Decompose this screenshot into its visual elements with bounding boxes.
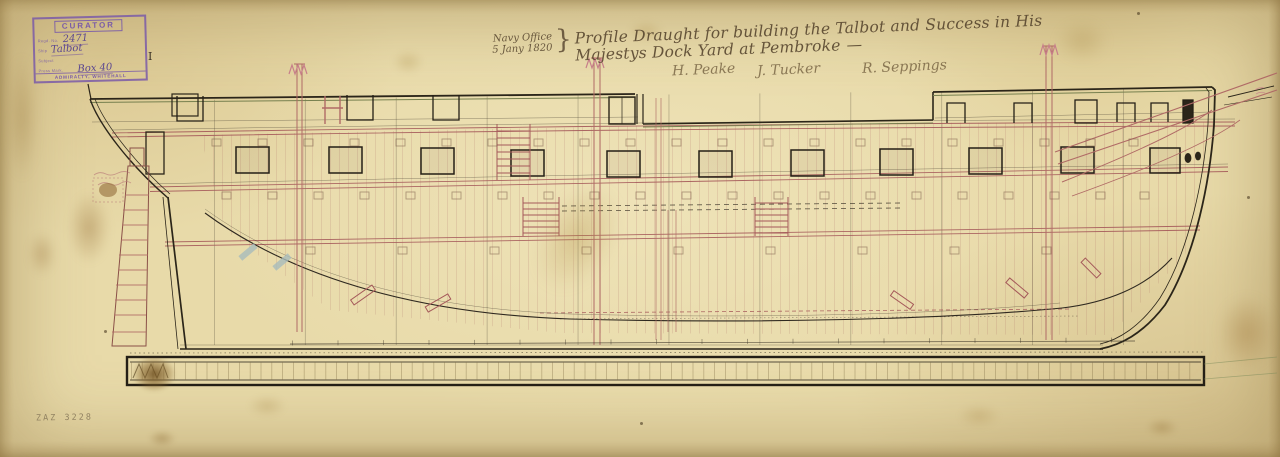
stamp-footer: ADMIRALTY, WHITEHALL xyxy=(36,70,146,80)
ship-profile-drawing xyxy=(0,0,1280,457)
hold-curve xyxy=(205,203,1172,321)
paper-sheet: CURATOR Regd. No.2471 ShipTalbot Subject… xyxy=(0,0,1280,457)
hawse-hole xyxy=(1185,153,1192,163)
keel-bar xyxy=(127,357,1277,385)
quarterdeck-ports xyxy=(177,95,459,121)
navy-office-date: Navy Office 5 Jany 1820 xyxy=(491,27,552,55)
gun-ports xyxy=(236,147,1180,177)
end-dash: — xyxy=(846,36,862,55)
hawse-hole xyxy=(1195,152,1201,161)
ink-speck xyxy=(104,330,107,333)
ink-blot xyxy=(99,183,117,197)
station-scale-line xyxy=(290,340,1135,344)
press-mark-suffix: I xyxy=(148,50,152,63)
reference-number: ZAZ 3228 xyxy=(36,413,93,424)
stamp-title: CURATOR xyxy=(62,20,115,30)
brace-glyph: } xyxy=(555,27,573,54)
signature-peake: H. Peake xyxy=(672,61,736,80)
ink-speck xyxy=(640,422,643,425)
diagonal-riders xyxy=(238,243,1100,312)
date-line: 5 Jany 1820 xyxy=(492,42,553,55)
ink-speck xyxy=(1247,196,1250,199)
ink-speck xyxy=(1137,12,1140,15)
mast-lines xyxy=(294,46,1277,345)
signature-tucker: J. Tucker xyxy=(757,61,821,80)
curator-stamp: CURATOR Regd. No.2471 ShipTalbot Subject… xyxy=(32,15,148,84)
